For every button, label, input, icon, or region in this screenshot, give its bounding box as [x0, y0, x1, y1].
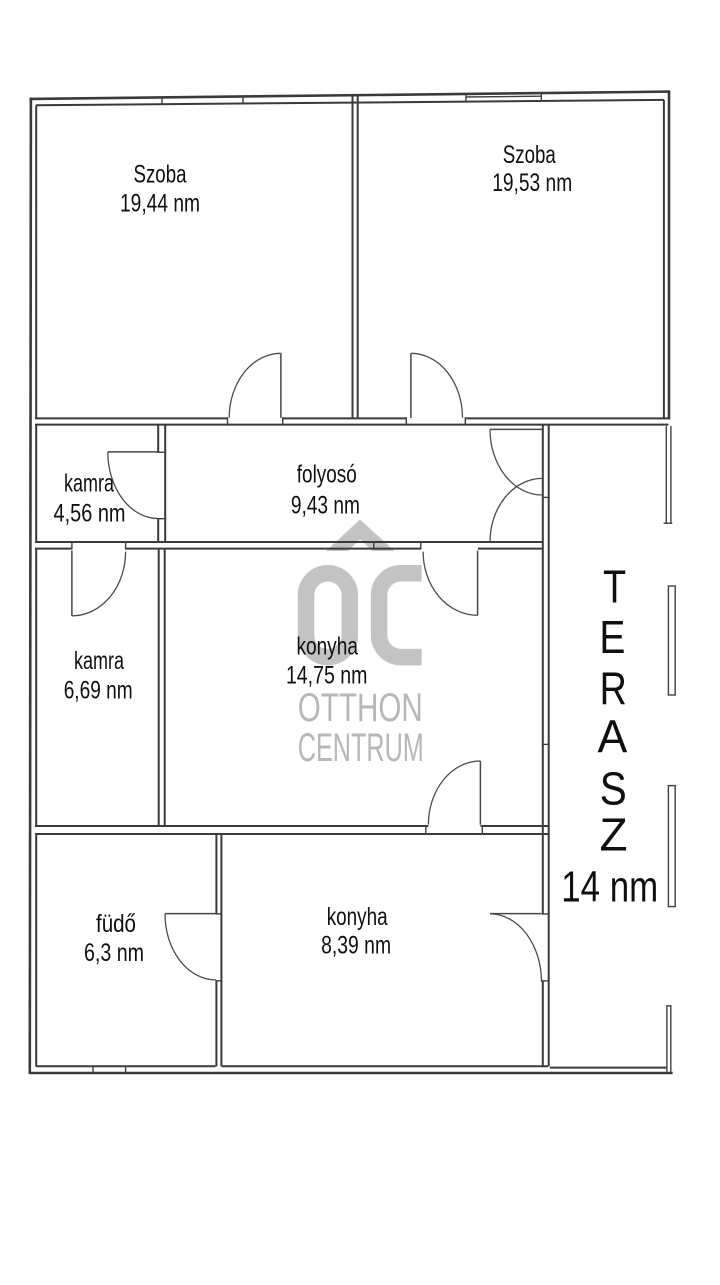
svg-text:OTTHON: OTTHON	[298, 686, 423, 730]
svg-text:folyosó: folyosó	[297, 461, 357, 489]
svg-text:9,43 nm: 9,43 nm	[291, 491, 360, 519]
svg-text:konyha: konyha	[296, 633, 358, 661]
svg-text:4,56 nm: 4,56 nm	[54, 500, 126, 528]
svg-text:Z: Z	[600, 808, 628, 860]
svg-text:19,44 nm: 19,44 nm	[120, 190, 200, 218]
svg-text:R: R	[600, 662, 627, 714]
svg-text:füdő: füdő	[96, 910, 136, 938]
svg-text:CENTRUM: CENTRUM	[298, 726, 424, 770]
svg-text:6,3 nm: 6,3 nm	[84, 939, 144, 967]
svg-text:6,69 nm: 6,69 nm	[64, 677, 133, 705]
svg-text:konyha: konyha	[327, 903, 388, 931]
svg-text:Szoba: Szoba	[503, 141, 556, 169]
svg-text:T: T	[603, 561, 626, 613]
svg-text:14,75 nm: 14,75 nm	[286, 662, 368, 690]
svg-text:19,53 nm: 19,53 nm	[492, 169, 572, 197]
svg-text:kamra: kamra	[64, 470, 114, 498]
svg-text:S: S	[600, 762, 627, 814]
svg-text:kamra: kamra	[74, 647, 124, 675]
svg-text:14 nm: 14 nm	[561, 863, 658, 912]
svg-text:A: A	[598, 710, 628, 762]
svg-text:Szoba: Szoba	[134, 161, 187, 189]
svg-text:8,39 nm: 8,39 nm	[321, 932, 391, 960]
svg-text:E: E	[599, 611, 625, 663]
